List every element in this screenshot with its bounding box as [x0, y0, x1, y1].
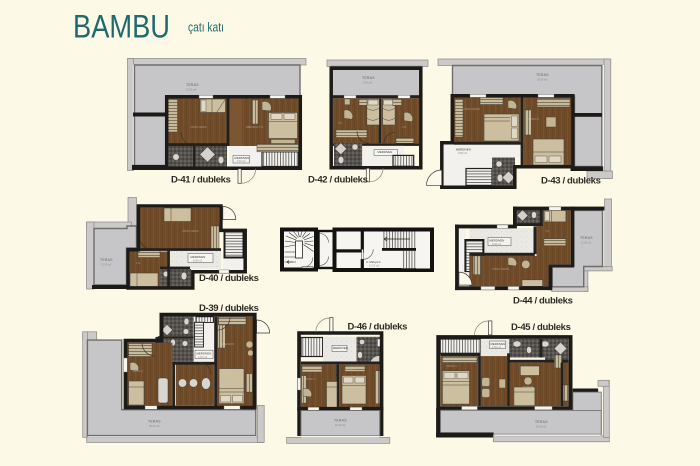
svg-text:9.00 m2: 9.00 m2 [363, 82, 373, 85]
svg-text:9.50 m2: 9.50 m2 [458, 152, 468, 155]
svg-text:8.00 m2: 8.00 m2 [492, 243, 502, 246]
svg-text:Y.O.: Y.O. [136, 261, 141, 265]
svg-text:D-45 / dubleks: D-45 / dubleks [511, 322, 571, 333]
svg-text:YATAK O.: YATAK O. [344, 368, 356, 372]
svg-text:Y.O.: Y.O. [545, 229, 550, 233]
svg-text:MERDİVEN: MERDİVEN [490, 238, 505, 243]
svg-text:YATAK O.: YATAK O. [446, 364, 458, 368]
svg-text:28.00 m2: 28.00 m2 [537, 79, 548, 82]
svg-text:36.00 m2: 36.00 m2 [149, 425, 160, 428]
svg-text:YATAK O.: YATAK O. [132, 369, 144, 373]
svg-text:30.00 m2: 30.00 m2 [186, 89, 197, 92]
svg-text:çatı katı: çatı katı [188, 21, 224, 35]
svg-text:D-39 / dubleks: D-39 / dubleks [199, 303, 259, 314]
svg-text:YATAK ODASI: YATAK ODASI [492, 267, 509, 271]
svg-text:MERDİVEN: MERDİVEN [197, 351, 212, 356]
svg-text:Y.O.: Y.O. [402, 125, 407, 129]
svg-text:D-42 / dubleks: D-42 / dubleks [308, 175, 368, 186]
svg-text:YATAK O.: YATAK O. [528, 117, 540, 121]
svg-text:EBEVEYN: EBEVEYN [222, 342, 234, 346]
svg-text:BAMBU: BAMBU [73, 9, 170, 45]
svg-text:YATAK ODASI: YATAK ODASI [190, 125, 207, 129]
svg-text:D-40 / dubleks: D-40 / dubleks [199, 273, 259, 284]
svg-text:A. Mahya K.: A. Mahya K. [366, 260, 381, 264]
svg-text:TERAS: TERAS [186, 83, 199, 87]
svg-text:D-41 / dubleks: D-41 / dubleks [171, 175, 231, 186]
svg-text:MERDİVEN: MERDİVEN [456, 147, 471, 152]
svg-text:TERAS: TERAS [334, 419, 347, 423]
svg-text:Y.O.: Y.O. [338, 121, 343, 125]
svg-text:4.50 m2: 4.50 m2 [492, 346, 502, 349]
svg-text:TERAS: TERAS [580, 236, 593, 240]
svg-text:OTURMA: OTURMA [522, 385, 534, 389]
svg-text:D-44 / dubleks: D-44 / dubleks [513, 296, 573, 307]
svg-text:12.00 m2: 12.00 m2 [369, 265, 380, 268]
svg-text:YATAK ODASI: YATAK ODASI [463, 107, 480, 111]
svg-text:TERAS: TERAS [362, 76, 375, 80]
svg-text:TERAS: TERAS [536, 73, 549, 77]
svg-text:4.50 m2: 4.50 m2 [198, 356, 208, 359]
svg-text:12.00 m2: 12.00 m2 [335, 424, 346, 427]
svg-text:MERDİVEN: MERDİVEN [378, 149, 393, 154]
svg-text:YATAK O.: YATAK O. [304, 377, 316, 381]
svg-text:11.00 m2: 11.00 m2 [581, 242, 592, 245]
svg-text:TERAS: TERAS [148, 420, 161, 424]
svg-text:4.50 m2: 4.50 m2 [237, 160, 247, 163]
svg-text:26.00 m2: 26.00 m2 [536, 426, 547, 429]
svg-text:YATAK ODASI: YATAK ODASI [182, 229, 199, 233]
svg-text:D-43 / dubleks: D-43 / dubleks [541, 176, 601, 187]
svg-text:12.00 m2: 12.00 m2 [101, 264, 112, 267]
svg-text:MERDİVEN: MERDİVEN [191, 254, 206, 259]
svg-text:D-46 / dubleks: D-46 / dubleks [348, 322, 408, 333]
svg-text:TERAS: TERAS [535, 420, 548, 424]
svg-text:8.00 m2: 8.00 m2 [193, 260, 203, 263]
svg-text:MERDİVEN: MERDİVEN [333, 345, 348, 350]
svg-text:TERAS: TERAS [100, 258, 113, 262]
svg-text:EBEVEYN Y.O.: EBEVEYN Y.O. [246, 125, 264, 129]
